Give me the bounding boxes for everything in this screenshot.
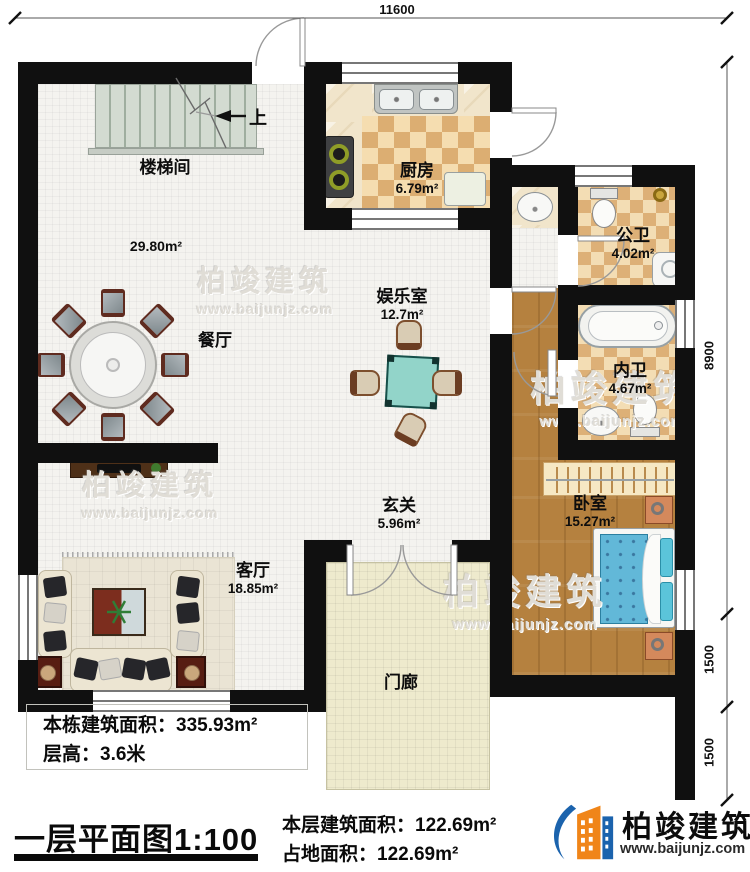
plant xyxy=(151,463,161,473)
bed-sheet xyxy=(642,534,661,624)
window xyxy=(352,208,458,230)
building-info-box: 本栋建筑面积：335.93m² 层高：3.6米 xyxy=(26,704,308,770)
nightstand xyxy=(645,632,673,660)
wall xyxy=(18,84,38,575)
dimension-right-lower: 1500 xyxy=(702,723,717,783)
side-table xyxy=(176,656,206,688)
wall xyxy=(38,443,218,463)
wall xyxy=(490,334,512,562)
table-corner xyxy=(430,402,437,409)
wall xyxy=(304,208,352,230)
plan-title: 一层平面图1:100 xyxy=(14,814,258,859)
floor-plan: 柏竣建筑 www.baijunjz.com 柏竣建筑 www.baijunjz.… xyxy=(0,0,750,872)
wall xyxy=(18,62,252,84)
wall xyxy=(490,158,512,288)
chair xyxy=(396,320,422,350)
wall xyxy=(458,62,512,84)
chair xyxy=(101,413,125,441)
ground-area-text: 占地面积：122.69m² xyxy=(282,839,458,866)
wall xyxy=(632,165,695,187)
room-label-dining: 餐厅 xyxy=(198,331,232,351)
kitchen-sink xyxy=(379,89,414,110)
washbasin xyxy=(517,192,553,222)
stove xyxy=(324,136,354,198)
wall xyxy=(558,440,695,460)
door-arc xyxy=(512,108,556,156)
toilet xyxy=(590,188,618,230)
window xyxy=(675,570,695,630)
room-label-porch: 门廊 xyxy=(384,673,418,693)
stairs xyxy=(95,84,257,148)
stairs-up-label: 上 xyxy=(249,104,267,130)
window xyxy=(575,165,632,187)
mattress xyxy=(600,534,648,624)
corridor-floor xyxy=(512,288,558,460)
bath-hall-floor xyxy=(512,228,558,288)
title-underline xyxy=(14,854,258,861)
room-label-stairwell: 楼梯间 xyxy=(140,158,191,178)
bathtub xyxy=(578,304,677,348)
sofa xyxy=(70,648,172,692)
window xyxy=(342,62,458,84)
table-corner xyxy=(432,357,439,364)
dining-table-turntable xyxy=(106,358,120,372)
chair xyxy=(432,370,462,396)
wall xyxy=(512,165,575,187)
floor-height-text: 层高：3.6米 xyxy=(43,739,145,766)
toilet xyxy=(630,394,660,440)
pillow xyxy=(660,538,673,577)
door-arc xyxy=(256,18,305,66)
sofa xyxy=(170,570,204,658)
stairs-ledge xyxy=(88,148,264,155)
table-corner xyxy=(385,400,392,407)
bed xyxy=(593,528,675,628)
company-logo-icon xyxy=(544,796,618,866)
dimension-top: 11600 xyxy=(357,2,437,17)
window xyxy=(675,300,695,348)
kitchen-sink xyxy=(419,89,454,110)
wall xyxy=(452,540,502,562)
wall xyxy=(304,62,342,84)
chair xyxy=(37,353,65,377)
coffee-table xyxy=(92,588,146,636)
washbasin xyxy=(582,406,620,436)
tv xyxy=(97,464,141,473)
dimension-right-upper: 8900 xyxy=(702,326,717,386)
wardrobe xyxy=(543,462,677,496)
table-corner xyxy=(387,355,394,362)
nightstand xyxy=(645,496,673,524)
sink-counter xyxy=(374,84,458,114)
burner xyxy=(329,144,349,164)
company-name: 柏竣建筑 xyxy=(622,802,750,846)
wall xyxy=(558,187,578,235)
burner xyxy=(329,170,349,190)
dimension-right-middle: 1500 xyxy=(702,630,717,690)
window xyxy=(18,575,38,660)
wall xyxy=(490,675,695,697)
wall xyxy=(490,562,512,675)
fridge xyxy=(444,172,486,206)
room-label-kitchen: 厨房 6.79m² xyxy=(396,161,439,198)
shower-head xyxy=(653,188,667,202)
room-label-entertainment: 娱乐室 12.7m² xyxy=(377,287,428,324)
wardrobe-rod xyxy=(546,479,674,481)
wall xyxy=(558,285,578,360)
company-website: www.baijunjz.com xyxy=(620,841,745,857)
pillow xyxy=(660,582,673,621)
chair xyxy=(350,370,380,396)
wall xyxy=(675,630,695,800)
floor-area-text: 本层建筑面积：122.69m² xyxy=(282,810,496,837)
room-label-bedroom: 卧室 15.27m² xyxy=(565,494,615,531)
building-area-text: 本栋建筑面积：335.93m² xyxy=(43,710,257,737)
room-label-living: 客厅 18.85m² xyxy=(228,561,278,598)
wall xyxy=(304,540,352,562)
wall xyxy=(490,84,512,112)
wall xyxy=(304,562,326,712)
sofa xyxy=(38,570,72,658)
room-label-public-bath: 公卫 4.02m² xyxy=(612,226,655,263)
wall xyxy=(675,187,695,300)
room-label-foyer: 玄关 5.96m² xyxy=(378,496,421,533)
wall xyxy=(304,84,326,208)
chair xyxy=(101,289,125,317)
room-label-inner-bath: 内卫 4.67m² xyxy=(609,361,652,398)
hall-area-label: 29.80m² xyxy=(130,238,182,255)
chair xyxy=(161,353,189,377)
